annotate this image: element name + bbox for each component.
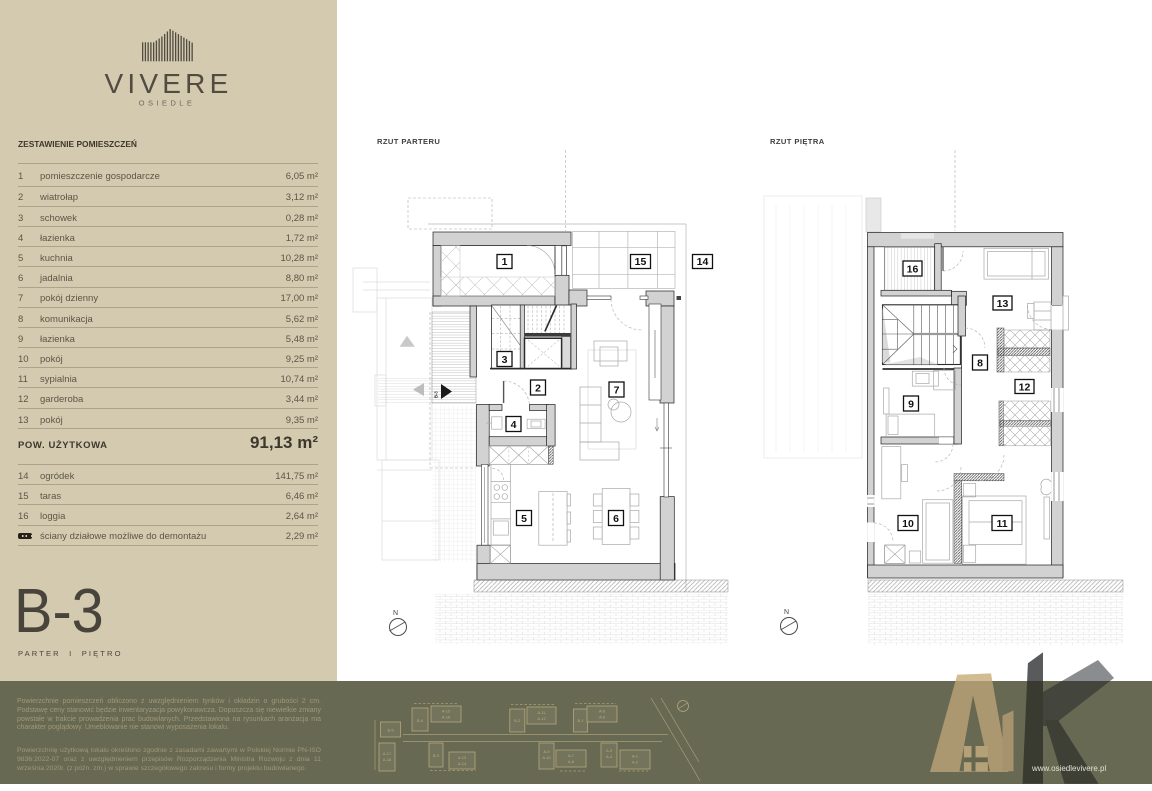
svg-text:5: 5 xyxy=(521,513,527,525)
svg-text:A-8: A-8 xyxy=(568,759,574,764)
svg-text:B-3: B-3 xyxy=(433,753,439,758)
svg-text:14: 14 xyxy=(697,256,709,268)
svg-text:10: 10 xyxy=(902,518,914,530)
svg-text:A-10: A-10 xyxy=(542,755,551,760)
svg-text:3: 3 xyxy=(502,354,508,366)
svg-text:A-17: A-17 xyxy=(383,751,391,756)
svg-text:A-16: A-16 xyxy=(442,715,450,720)
svg-text:13: 13 xyxy=(997,298,1009,310)
svg-text:15: 15 xyxy=(635,256,647,268)
svg-text:B-4: B-4 xyxy=(417,718,424,723)
svg-text:A-1: A-1 xyxy=(632,754,638,759)
svg-text:A-4: A-4 xyxy=(606,754,613,759)
svg-text:A-6: A-6 xyxy=(599,715,605,720)
svg-text:1: 1 xyxy=(502,256,508,268)
svg-text:16: 16 xyxy=(907,264,919,276)
svg-text:A-2: A-2 xyxy=(632,760,638,765)
svg-text:A-14: A-14 xyxy=(458,761,467,766)
svg-text:9: 9 xyxy=(908,399,914,411)
svg-text:A-5: A-5 xyxy=(599,709,605,714)
svg-text:12: 12 xyxy=(1019,382,1031,394)
svg-text:2: 2 xyxy=(535,383,541,395)
svg-text:A-7: A-7 xyxy=(568,753,574,758)
svg-text:A-3: A-3 xyxy=(606,748,612,753)
svg-text:A-9: A-9 xyxy=(543,749,549,754)
svg-text:11: 11 xyxy=(996,518,1007,530)
svg-text:8: 8 xyxy=(977,358,983,370)
svg-text:7: 7 xyxy=(614,385,620,397)
svg-text:B-3: B-3 xyxy=(434,391,439,398)
svg-text:A-15: A-15 xyxy=(442,709,450,714)
svg-text:A-12: A-12 xyxy=(537,716,545,721)
svg-text:A-18: A-18 xyxy=(383,757,391,762)
svg-text:N: N xyxy=(393,610,398,617)
svg-text:B-2: B-2 xyxy=(514,718,520,723)
svg-text:6: 6 xyxy=(613,513,619,525)
svg-text:4: 4 xyxy=(511,419,517,431)
svg-text:VIVERE: VIVERE xyxy=(105,68,233,99)
svg-text:N: N xyxy=(784,609,789,616)
svg-text:B-1: B-1 xyxy=(577,718,583,723)
svg-text:A-11: A-11 xyxy=(538,710,546,715)
svg-text:OSIEDLE: OSIEDLE xyxy=(139,99,196,108)
svg-text:A-13: A-13 xyxy=(458,755,466,760)
svg-text:B-5: B-5 xyxy=(387,728,393,733)
svg-text:www.osiedlevivere.pl: www.osiedlevivere.pl xyxy=(1031,764,1106,773)
